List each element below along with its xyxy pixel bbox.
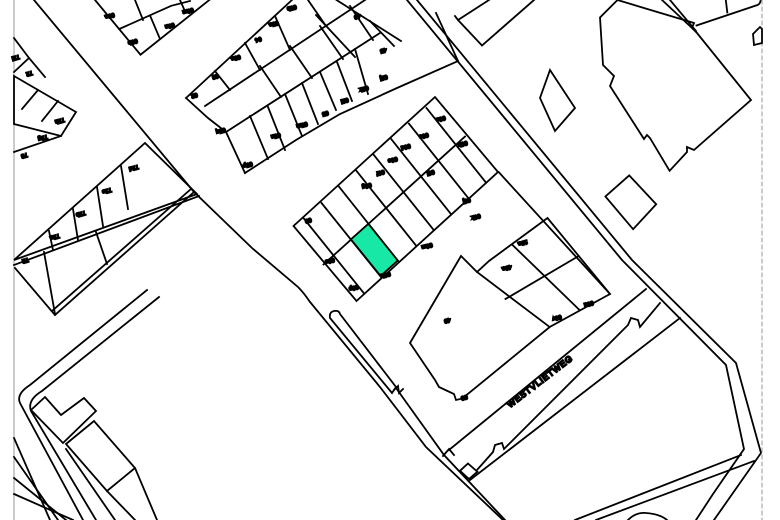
svg-text:65q: 65q — [215, 126, 226, 134]
svg-text:66c: 66c — [418, 131, 429, 139]
svg-text:63a: 63a — [229, 53, 241, 61]
svg-text:45: 45 — [379, 46, 387, 53]
svg-text:66f: 66f — [375, 168, 385, 176]
svg-text:72h: 72h — [54, 116, 65, 124]
svg-text:68v: 68v — [551, 313, 562, 321]
svg-text:66s: 66s — [324, 256, 335, 264]
svg-text:49: 49 — [443, 316, 451, 323]
svg-text:72d: 72d — [128, 163, 139, 171]
svg-text:72g: 72g — [37, 133, 48, 141]
svg-text:72l: 72l — [11, 53, 20, 61]
svg-text:65: 65 — [321, 109, 329, 116]
svg-text:64: 64 — [254, 35, 263, 43]
svg-text:65m: 65m — [295, 120, 308, 129]
svg-text:69: 69 — [304, 216, 312, 223]
svg-text:66p: 66p — [348, 283, 359, 291]
svg-text:69b: 69b — [127, 37, 138, 45]
svg-text:72c: 72c — [101, 186, 112, 194]
svg-text:72b: 72b — [75, 209, 86, 217]
svg-text:69n: 69n — [164, 21, 175, 29]
svg-text:66g: 66g — [361, 181, 372, 189]
svg-text:66m: 66m — [420, 241, 433, 250]
svg-text:66k: 66k — [470, 212, 481, 220]
svg-text:66l: 66l — [426, 168, 435, 176]
svg-text:66b: 66b — [457, 139, 468, 147]
svg-text:66e: 66e — [387, 155, 398, 163]
svg-text:62k: 62k — [358, 84, 369, 92]
svg-text:49a: 49a — [500, 263, 512, 271]
svg-text:72: 72 — [25, 69, 33, 76]
svg-text:WESTVLIETWEG: WESTVLIETWEG — [505, 353, 575, 410]
svg-text:65n: 65n — [270, 131, 281, 139]
svg-text:65p: 65p — [242, 160, 253, 168]
svg-text:62j: 62j — [379, 73, 388, 81]
svg-text:66j: 66j — [462, 196, 471, 204]
svg-text:62l: 62l — [340, 96, 349, 104]
svg-text:66d: 66d — [400, 142, 411, 150]
svg-text:73: 73 — [20, 151, 28, 158]
svg-text:68u: 68u — [583, 299, 594, 307]
